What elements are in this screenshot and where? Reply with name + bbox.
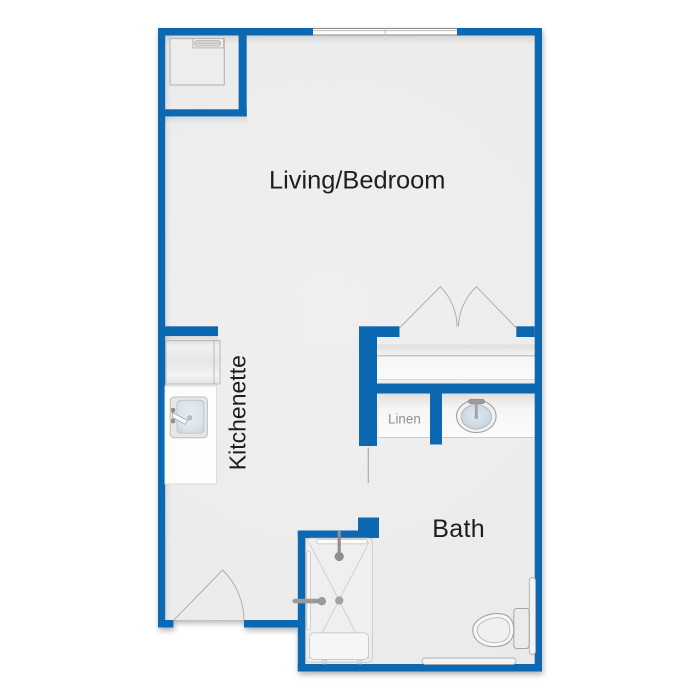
svg-text:Linen: Linen: [388, 412, 421, 427]
svg-text:Living/Bedroom: Living/Bedroom: [269, 167, 445, 195]
svg-text:Kitchenette: Kitchenette: [225, 355, 251, 470]
svg-text:Bath: Bath: [432, 515, 485, 543]
